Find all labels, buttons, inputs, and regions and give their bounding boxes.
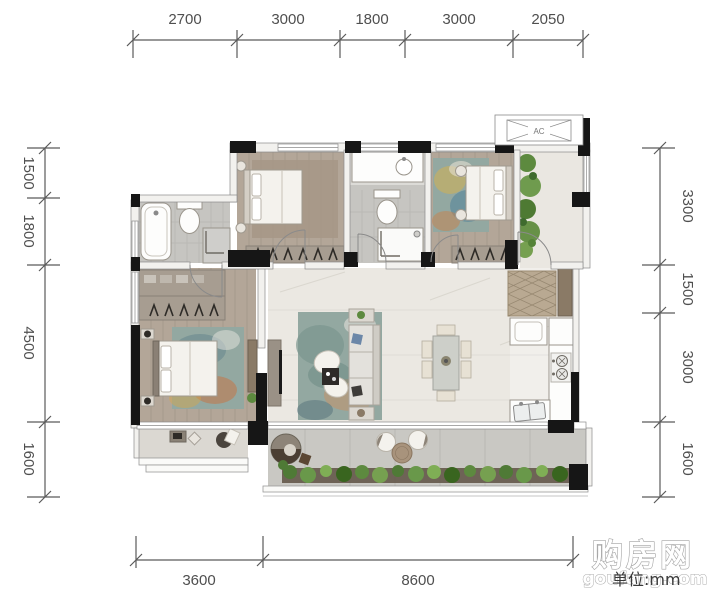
floor-plan-page: AC 2700 3000 1800 3000 2050 1500 1800 45… — [0, 0, 713, 600]
stove — [551, 353, 571, 382]
dim-label: 3600 — [182, 572, 215, 589]
dim-label: 2700 — [168, 11, 201, 28]
sofa — [349, 325, 380, 405]
dim-label: 1600 — [20, 442, 37, 475]
dining-chair — [437, 325, 455, 335]
dim-label: 3300 — [679, 189, 696, 222]
master-console-plant — [247, 393, 257, 403]
master-shower — [203, 228, 230, 263]
bedroom2-bed — [244, 170, 302, 224]
bedroom3-wardrobe — [452, 246, 514, 263]
fridge — [510, 318, 547, 345]
dining-chair — [461, 341, 471, 358]
bathroom2-faucet — [402, 157, 406, 161]
dim-label: 3000 — [442, 11, 475, 28]
balcony-glass-doors — [137, 422, 586, 429]
dimension-bottom: 3600 8600 — [130, 536, 579, 589]
dim-label: 1500 — [679, 272, 696, 305]
kitchen-entry-rug — [508, 271, 556, 316]
watermark: 购房网 goufang.com 单位:mm — [582, 538, 707, 589]
bedroom2-nightstand — [236, 223, 246, 233]
bathroom2-sink — [396, 159, 412, 175]
dim-label: 1600 — [679, 442, 696, 475]
ac-label: AC — [533, 127, 544, 136]
living-tv-console — [268, 340, 282, 406]
dim-label: 1800 — [355, 11, 388, 28]
bedroom3-pouf — [456, 210, 467, 221]
dim-label: 8600 — [401, 572, 434, 589]
hanging-chair — [271, 434, 301, 464]
bedroom3-bed — [466, 166, 512, 220]
bedroom3-pouf — [456, 166, 467, 177]
dim-label: 4500 — [20, 326, 37, 359]
dining-chair — [437, 391, 455, 401]
bedroom2 — [236, 160, 344, 263]
dimension-right: 3300 1500 3000 1600 — [642, 142, 696, 503]
dining-chair — [461, 361, 471, 378]
master-tv-console — [248, 340, 257, 392]
ac-platform: AC — [495, 115, 583, 145]
kitchen-tall-cabinet — [558, 268, 572, 316]
bathroom2-shower — [378, 228, 423, 261]
dimension-left: 1500 1800 4500 1600 — [20, 142, 60, 503]
dimension-top: 2700 3000 1800 3000 2050 — [127, 11, 589, 58]
dim-label: 3000 — [271, 11, 304, 28]
master-wardrobe — [139, 270, 225, 320]
bedroom2-nightstand — [236, 161, 246, 171]
floor-plan-image: AC 2700 3000 1800 3000 2050 1500 1800 45… — [0, 0, 713, 600]
kitchen-corner-counter — [549, 318, 573, 345]
bathtub — [141, 203, 171, 260]
dining-chair — [422, 341, 432, 358]
dim-label: 3000 — [679, 350, 696, 383]
window — [278, 144, 498, 151]
dim-label: 1800 — [20, 214, 37, 247]
dim-label: 2050 — [531, 11, 564, 28]
master-bed — [153, 341, 217, 396]
unit-label: 单位:mm — [612, 570, 681, 589]
dining-chair — [422, 361, 432, 378]
laptop — [173, 433, 182, 439]
dim-label: 1500 — [20, 156, 37, 189]
